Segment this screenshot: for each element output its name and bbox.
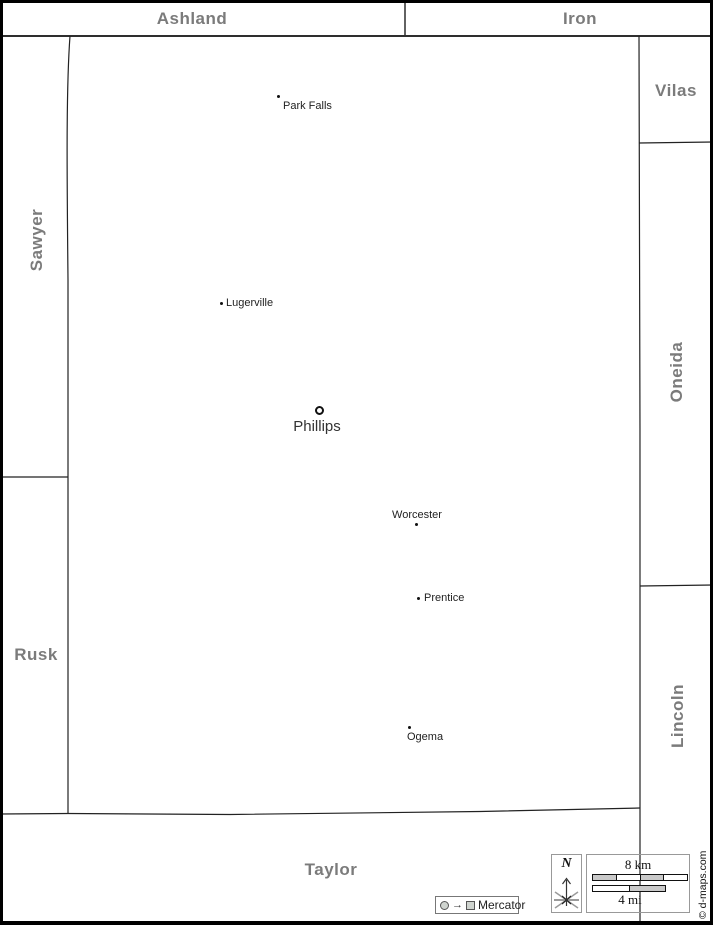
vilas-oneida-line xyxy=(639,142,713,143)
frame-top xyxy=(0,0,713,3)
town-dot-worcester xyxy=(415,523,418,526)
county-seat-marker-phillips xyxy=(315,406,324,415)
county-boundaries xyxy=(0,0,713,925)
arrow-right-icon: → xyxy=(452,900,463,911)
projection-label: Mercator xyxy=(478,898,525,912)
projection-legend-box: → Mercator xyxy=(435,896,519,914)
county-label-sawyer: Sawyer xyxy=(27,209,47,272)
town-label-lugerville: Lugerville xyxy=(226,297,273,309)
town-label-park-falls: Park Falls xyxy=(283,100,332,112)
county-label-iron: Iron xyxy=(563,9,597,29)
east-boundary xyxy=(639,36,640,921)
south-boundary xyxy=(0,808,640,815)
county-label-ashland: Ashland xyxy=(157,9,228,29)
town-label-ogema: Ogema xyxy=(407,731,443,743)
county-seat-label-phillips: Phillips xyxy=(293,418,341,435)
town-dot-ogema xyxy=(408,726,411,729)
county-label-taylor: Taylor xyxy=(305,860,358,880)
compass-rose-icon xyxy=(552,873,581,913)
scale-mi-label: 4 mi xyxy=(587,892,673,908)
county-label-lincoln: Lincoln xyxy=(668,684,688,748)
scale-bar-mi xyxy=(592,885,666,892)
town-label-worcester: Worcester xyxy=(392,509,442,521)
town-dot-lugerville xyxy=(220,302,223,305)
scale-km-label: 8 km xyxy=(587,857,689,873)
county-label-oneida: Oneida xyxy=(667,342,687,403)
frame-left xyxy=(0,0,3,925)
projected-square-icon xyxy=(466,901,475,910)
dmaps-credit: © d-maps.com xyxy=(697,851,709,919)
oneida-lincoln-line xyxy=(640,585,713,586)
compass-box: N xyxy=(551,854,582,913)
town-label-prentice: Prentice xyxy=(424,592,464,604)
north-label: N xyxy=(552,856,581,872)
scale-bar-box: 8 km 4 mi xyxy=(586,854,690,913)
west-boundary xyxy=(67,36,70,813)
frame-bottom xyxy=(0,921,713,925)
county-label-vilas: Vilas xyxy=(655,81,697,101)
globe-circle-icon xyxy=(440,901,449,910)
county-label-rusk: Rusk xyxy=(14,645,58,665)
price-county-map: Ashland Iron Sawyer Vilas Oneida Rusk Li… xyxy=(0,0,713,925)
town-dot-park-falls xyxy=(277,95,280,98)
scale-bar-km xyxy=(592,874,688,881)
town-dot-prentice xyxy=(417,597,420,600)
